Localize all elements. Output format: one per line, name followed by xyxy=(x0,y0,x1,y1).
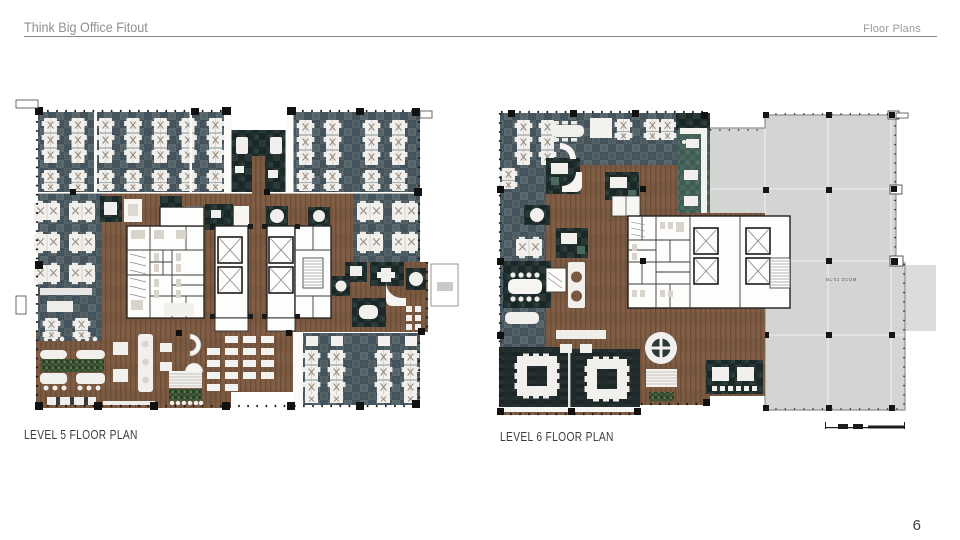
svg-text:BL'01 ZCOM: BL'01 ZCOM xyxy=(826,277,857,282)
